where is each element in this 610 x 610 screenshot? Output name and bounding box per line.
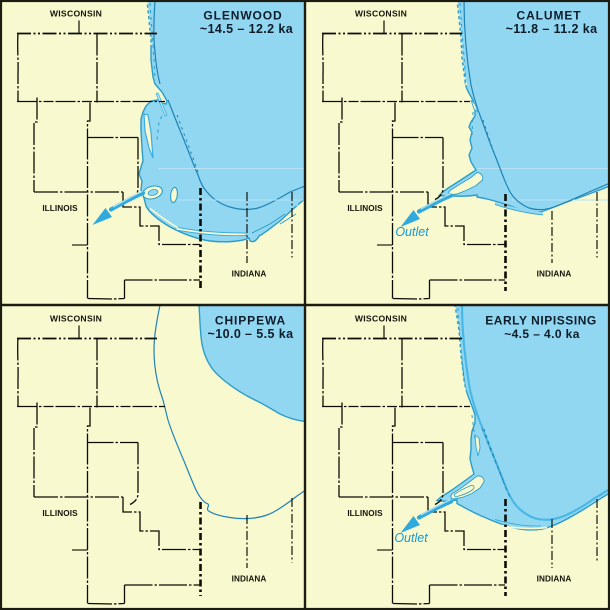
svg-text:ILLINOIS: ILLINOIS	[347, 509, 383, 518]
svg-text:WISCONSIN: WISCONSIN	[355, 9, 407, 19]
svg-text:INDIANA: INDIANA	[232, 575, 267, 584]
svg-text:INDIANA: INDIANA	[232, 270, 267, 279]
svg-text:WISCONSIN: WISCONSIN	[355, 314, 407, 324]
svg-text:ILLINOIS: ILLINOIS	[347, 204, 383, 213]
svg-text:WISCONSIN: WISCONSIN	[50, 9, 102, 19]
svg-text:INDIANA: INDIANA	[537, 575, 572, 584]
svg-text:ILLINOIS: ILLINOIS	[42, 509, 78, 518]
svg-text:CALUMET: CALUMET	[517, 9, 582, 23]
svg-text:GLENWOOD: GLENWOOD	[203, 9, 282, 23]
svg-text:~11.8 – 11.2 ka: ~11.8 – 11.2 ka	[506, 22, 599, 36]
svg-text:WISCONSIN: WISCONSIN	[50, 314, 102, 324]
svg-text:ILLINOIS: ILLINOIS	[42, 204, 78, 213]
svg-text:INDIANA: INDIANA	[537, 270, 572, 279]
svg-text:Outlet: Outlet	[395, 225, 429, 239]
svg-text:Outlet: Outlet	[394, 531, 428, 545]
svg-text:~14.5 – 12.2 ka: ~14.5 – 12.2 ka	[200, 22, 294, 36]
svg-text:~10.0 – 5.5 ka: ~10.0 – 5.5 ka	[208, 327, 295, 341]
svg-text:CHIPPEWA: CHIPPEWA	[215, 314, 286, 328]
svg-text:EARLY NIPISSING: EARLY NIPISSING	[485, 314, 597, 328]
svg-text:~4.5 – 4.0 ka: ~4.5 – 4.0 ka	[504, 327, 580, 341]
